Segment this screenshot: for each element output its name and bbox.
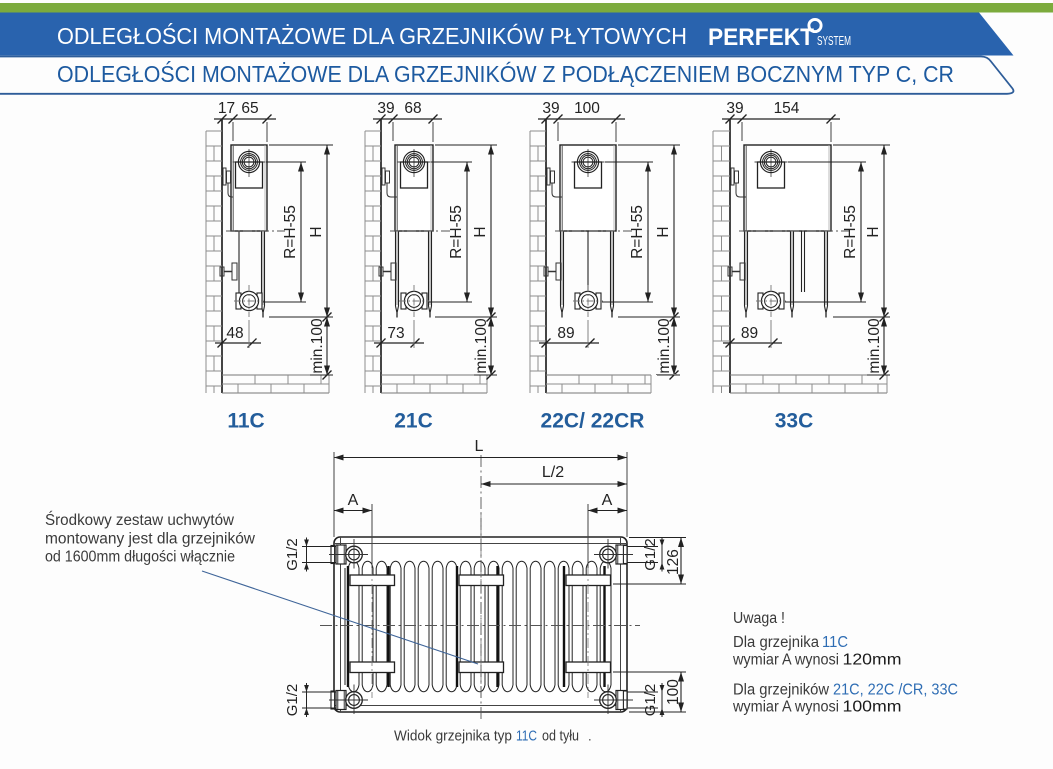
svg-text:wymiar A wynosi: wymiar A wynosi: [732, 699, 839, 716]
svg-text:100mm: 100mm: [843, 699, 902, 716]
svg-text:48: 48: [226, 325, 243, 342]
svg-text:Widok grzejnika typ: Widok grzejnika typ: [394, 728, 512, 745]
svg-text:H: H: [472, 226, 489, 237]
svg-text:Dla grzejników: Dla grzejników: [733, 682, 830, 699]
svg-text:Dla grzejnika: Dla grzejnika: [733, 634, 819, 651]
svg-text:100: 100: [574, 100, 600, 117]
svg-text:126: 126: [665, 549, 682, 575]
svg-text:17: 17: [218, 100, 235, 117]
svg-text:min.100: min.100: [656, 318, 673, 374]
svg-text:A: A: [602, 492, 613, 509]
svg-text:11C: 11C: [227, 410, 264, 433]
svg-text:L: L: [475, 438, 484, 455]
svg-text:od 1600mm długości włącznie: od 1600mm długości włącznie: [45, 549, 235, 566]
svg-text:G1/2: G1/2: [284, 538, 301, 571]
svg-text:wymiar A wynosi: wymiar A wynosi: [732, 652, 839, 669]
svg-text:39: 39: [542, 100, 559, 117]
svg-text:min.100: min.100: [309, 318, 326, 374]
svg-text:39: 39: [377, 100, 394, 117]
svg-text:PERFEKT: PERFEKT: [708, 24, 814, 51]
svg-text:R=H-55: R=H-55: [282, 205, 299, 259]
svg-text:65: 65: [241, 100, 258, 117]
svg-text:22C/ 22CR: 22C/ 22CR: [541, 410, 645, 433]
svg-text:A: A: [348, 492, 359, 509]
svg-text:120mm: 120mm: [843, 652, 902, 669]
svg-text:21C: 21C: [394, 410, 433, 433]
svg-text:.: .: [588, 729, 592, 744]
svg-text:H: H: [308, 226, 325, 237]
svg-text:G1/2: G1/2: [284, 684, 301, 717]
svg-text:73: 73: [387, 325, 404, 342]
svg-text:Środkowy zestaw uchwytów: Środkowy zestaw uchwytów: [45, 511, 235, 529]
svg-text:89: 89: [557, 325, 574, 342]
svg-text:G1/2: G1/2: [642, 684, 659, 717]
svg-text:R=H-55: R=H-55: [448, 205, 465, 259]
svg-text:min.100: min.100: [473, 318, 490, 374]
svg-text:G1/2: G1/2: [642, 538, 659, 571]
svg-text:154: 154: [774, 100, 800, 117]
svg-text:11C: 11C: [822, 634, 848, 651]
svg-text:H: H: [655, 226, 672, 237]
svg-text:68: 68: [404, 100, 421, 117]
svg-text:od tyłu: od tyłu: [542, 728, 579, 745]
svg-text:11C: 11C: [516, 728, 537, 745]
svg-text:100: 100: [665, 679, 682, 705]
svg-text:21C, 22C /CR, 33C: 21C, 22C /CR, 33C: [833, 682, 958, 699]
svg-text:33C: 33C: [775, 410, 814, 433]
svg-text:ODLEGŁOŚCI MONTAŻOWE DLA GRZ: ODLEGŁOŚCI MONTAŻOWE DLA GRZEJNIKÓW PŁYT…: [57, 22, 687, 49]
svg-text:R=H-55: R=H-55: [842, 205, 859, 259]
svg-text:89: 89: [741, 325, 758, 342]
svg-text:L/2: L/2: [542, 464, 564, 481]
svg-text:39: 39: [726, 100, 743, 117]
svg-text:H: H: [865, 226, 882, 237]
svg-text:min.100: min.100: [866, 318, 883, 374]
svg-text:ODLEGŁOŚCI MONTAŻOWE DLA GRZEJ: ODLEGŁOŚCI MONTAŻOWE DLA GRZEJNIKÓW Z PO…: [57, 60, 954, 87]
svg-text:Uwaga !: Uwaga !: [733, 610, 785, 627]
svg-text:montowany jest dla grzejników: montowany jest dla grzejników: [45, 531, 256, 548]
svg-text:R=H-55: R=H-55: [629, 205, 646, 259]
svg-text:SYSTEM: SYSTEM: [817, 33, 851, 48]
